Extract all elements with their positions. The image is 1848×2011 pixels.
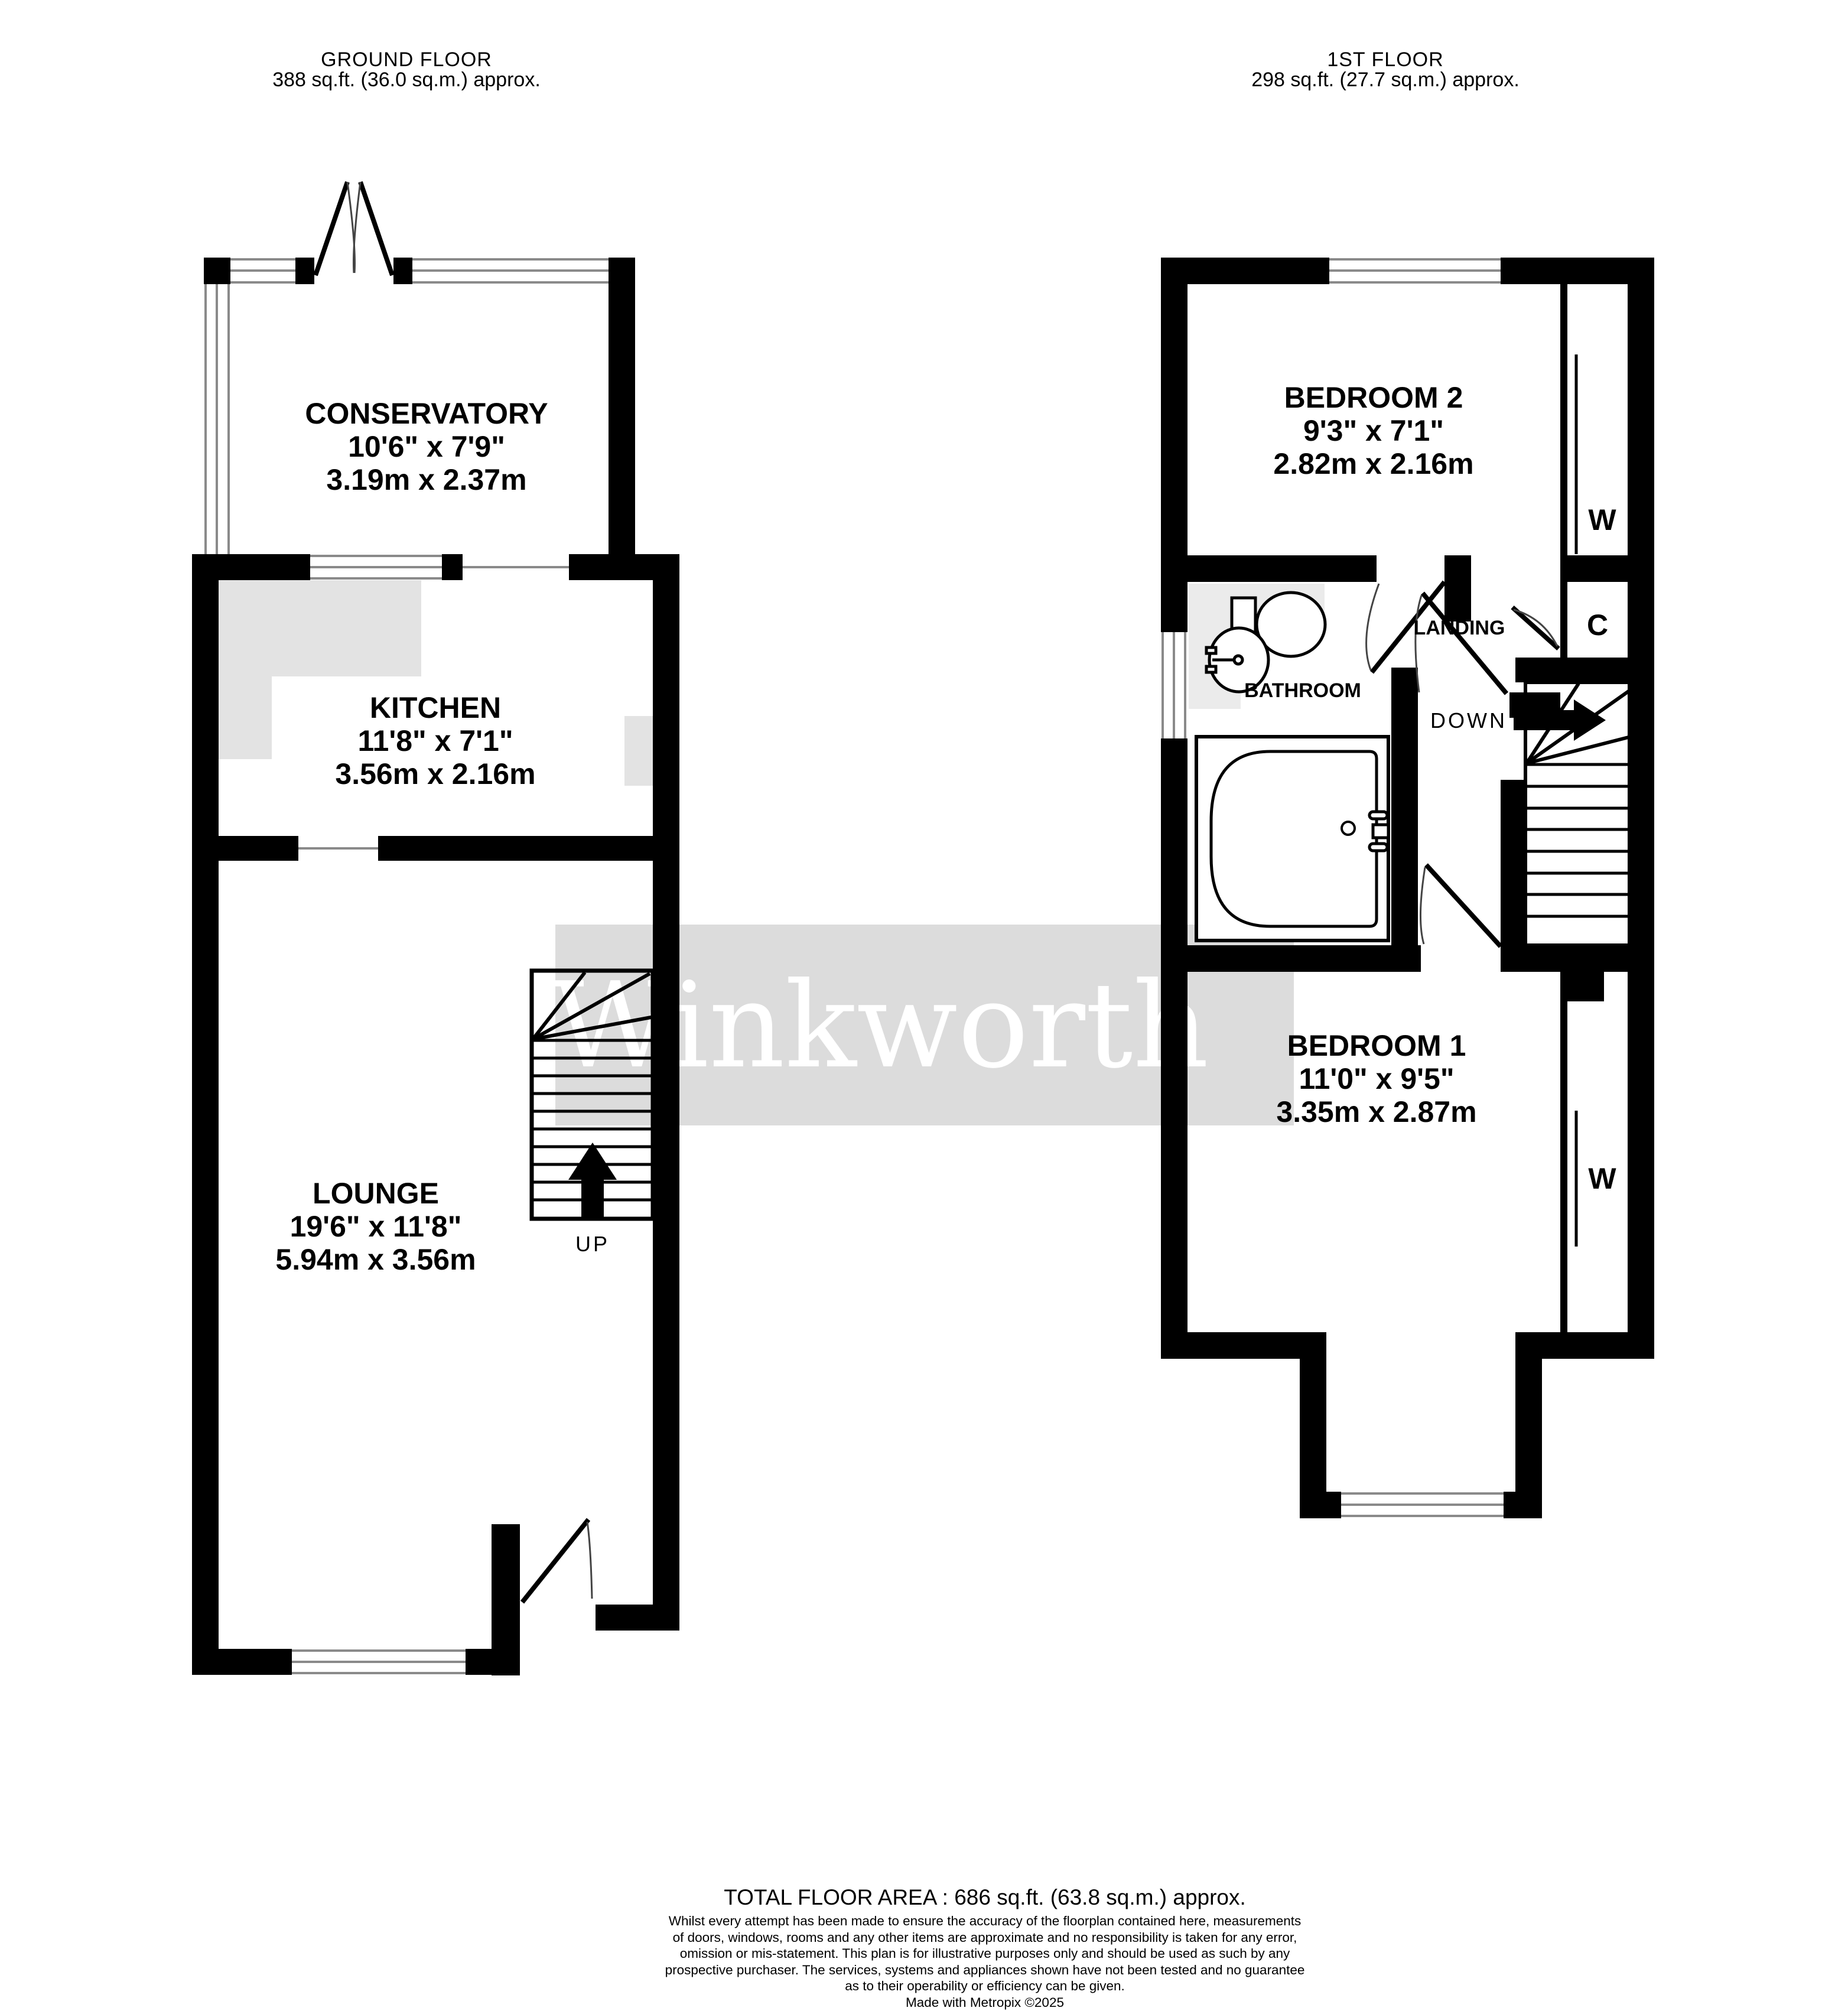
lounge-window [292, 1649, 466, 1675]
bedroom1-metric: 3.35m x 2.87m [1276, 1095, 1476, 1128]
bedroom2-label: BEDROOM 2 9'3" x 7'1" 2.82m x 2.16m [1273, 381, 1473, 480]
bedroom2-window [1329, 258, 1501, 284]
landing-label: LANDING [1414, 617, 1505, 639]
kitchen-label: KITCHEN 11'8" x 7'1" 3.56m x 2.16m [335, 691, 535, 790]
kitchen-imperial: 11'8" x 7'1" [357, 724, 513, 757]
wardrobe-bedroom2-label: W [1588, 503, 1616, 536]
kitchen-name: KITCHEN [370, 691, 501, 724]
bedroom2-name: BEDROOM 2 [1284, 381, 1463, 414]
lounge-name: LOUNGE [313, 1177, 439, 1210]
bedroom2-imperial: 9'3" x 7'1" [1303, 414, 1444, 447]
conservatory-window-left [204, 284, 230, 554]
metropix-credit: Made with Metropix ©2025 [512, 1994, 1457, 2011]
first-floor-plan: DOWN [1161, 258, 1654, 1518]
bedroom1-label: BEDROOM 1 11'0" x 9'5" 3.35m x 2.87m [1276, 1029, 1476, 1128]
up-label: UP [575, 1232, 610, 1256]
bedroom1-imperial: 11'0" x 9'5" [1299, 1062, 1454, 1095]
lounge-imperial: 19'6" x 11'8" [290, 1210, 462, 1243]
conservatory-label: CONSERVATORY 10'6" x 7'9" 3.19m x 2.37m [305, 397, 548, 496]
lounge-metric: 5.94m x 3.56m [275, 1243, 476, 1276]
kitchen-window [310, 554, 442, 580]
bedroom1-name: BEDROOM 1 [1287, 1029, 1466, 1062]
disclaimer-line: as to their operability or efficiency ca… [512, 1978, 1457, 1994]
cupboard-label: C [1587, 608, 1608, 642]
disclaimer-line: prospective purchaser. The services, sys… [512, 1962, 1457, 1979]
disclaimer-line: Whilst every attempt has been made to en… [512, 1913, 1457, 1929]
down-label: DOWN [1430, 708, 1507, 733]
bathtub-icon [1196, 737, 1388, 941]
conservatory-window-top-right [412, 258, 609, 284]
disclaimer-line: omission or mis-statement. This plan is … [512, 1945, 1457, 1962]
conservatory-imperial: 10'6" x 7'9" [348, 430, 505, 463]
bedroom1-window [1341, 1492, 1504, 1518]
kitchen-metric: 3.56m x 2.16m [335, 757, 535, 790]
conservatory-window-top-left [230, 258, 295, 284]
conservatory-french-doors [315, 182, 392, 275]
bedroom2-metric: 2.82m x 2.16m [1273, 447, 1473, 480]
lounge-label: LOUNGE 19'6" x 11'8" 5.94m x 3.56m [275, 1177, 476, 1276]
watermark-text: Winkworth [552, 957, 1209, 1095]
disclaimer-line: of doors, windows, rooms and any other i… [512, 1929, 1457, 1946]
staircase-down [1514, 682, 1636, 945]
floorplan-canvas: Winkworth [0, 0, 1848, 2011]
entrance-door [522, 1519, 592, 1602]
disclaimer: Whilst every attempt has been made to en… [512, 1913, 1457, 2010]
floorplan-page: GROUND FLOOR 388 sq.ft. (36.0 sq.m.) app… [0, 0, 1848, 2011]
cupboard-door [1512, 607, 1559, 649]
kitchen-lounge-divider [219, 836, 653, 861]
bathroom-window [1161, 632, 1187, 738]
conservatory-metric: 3.19m x 2.37m [326, 463, 526, 496]
bathroom-label: BATHROOM [1244, 679, 1361, 702]
total-floor-area: TOTAL FLOOR AREA : 686 sq.ft. (63.8 sq.m… [512, 1886, 1457, 1909]
bedroom1-door [1420, 865, 1501, 946]
conservatory-name: CONSERVATORY [305, 397, 548, 430]
wardrobe-bedroom1-label: W [1588, 1162, 1616, 1195]
